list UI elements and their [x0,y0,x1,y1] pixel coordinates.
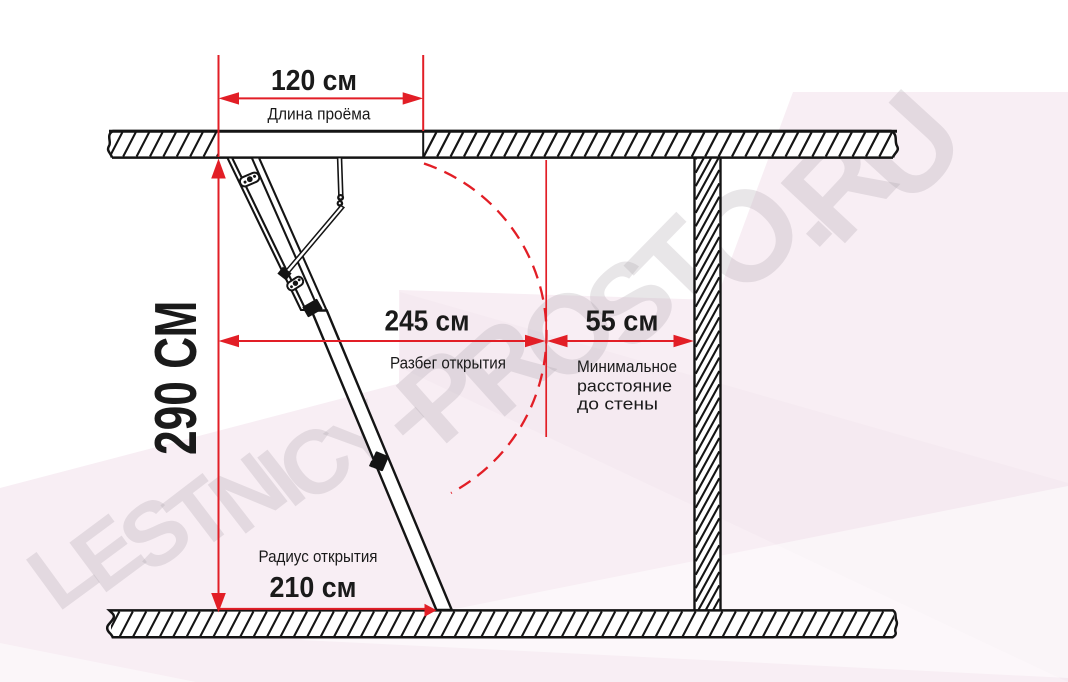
svg-text:до стены: до стены [577,395,658,414]
svg-text:245 см: 245 см [385,306,470,338]
svg-text:расстояние: расстояние [577,377,672,396]
svg-text:Разбег открытия: Разбег открытия [390,354,506,373]
svg-text:Минимальное: Минимальное [577,357,677,376]
svg-text:210 см: 210 см [270,572,357,604]
svg-text:Радиус открытия: Радиус открытия [259,547,378,566]
svg-text:55 см: 55 см [586,306,659,338]
svg-text:290 СМ: 290 СМ [144,301,210,455]
svg-text:120 см: 120 см [271,65,357,97]
svg-text:Длина проёма: Длина проёма [268,105,371,124]
